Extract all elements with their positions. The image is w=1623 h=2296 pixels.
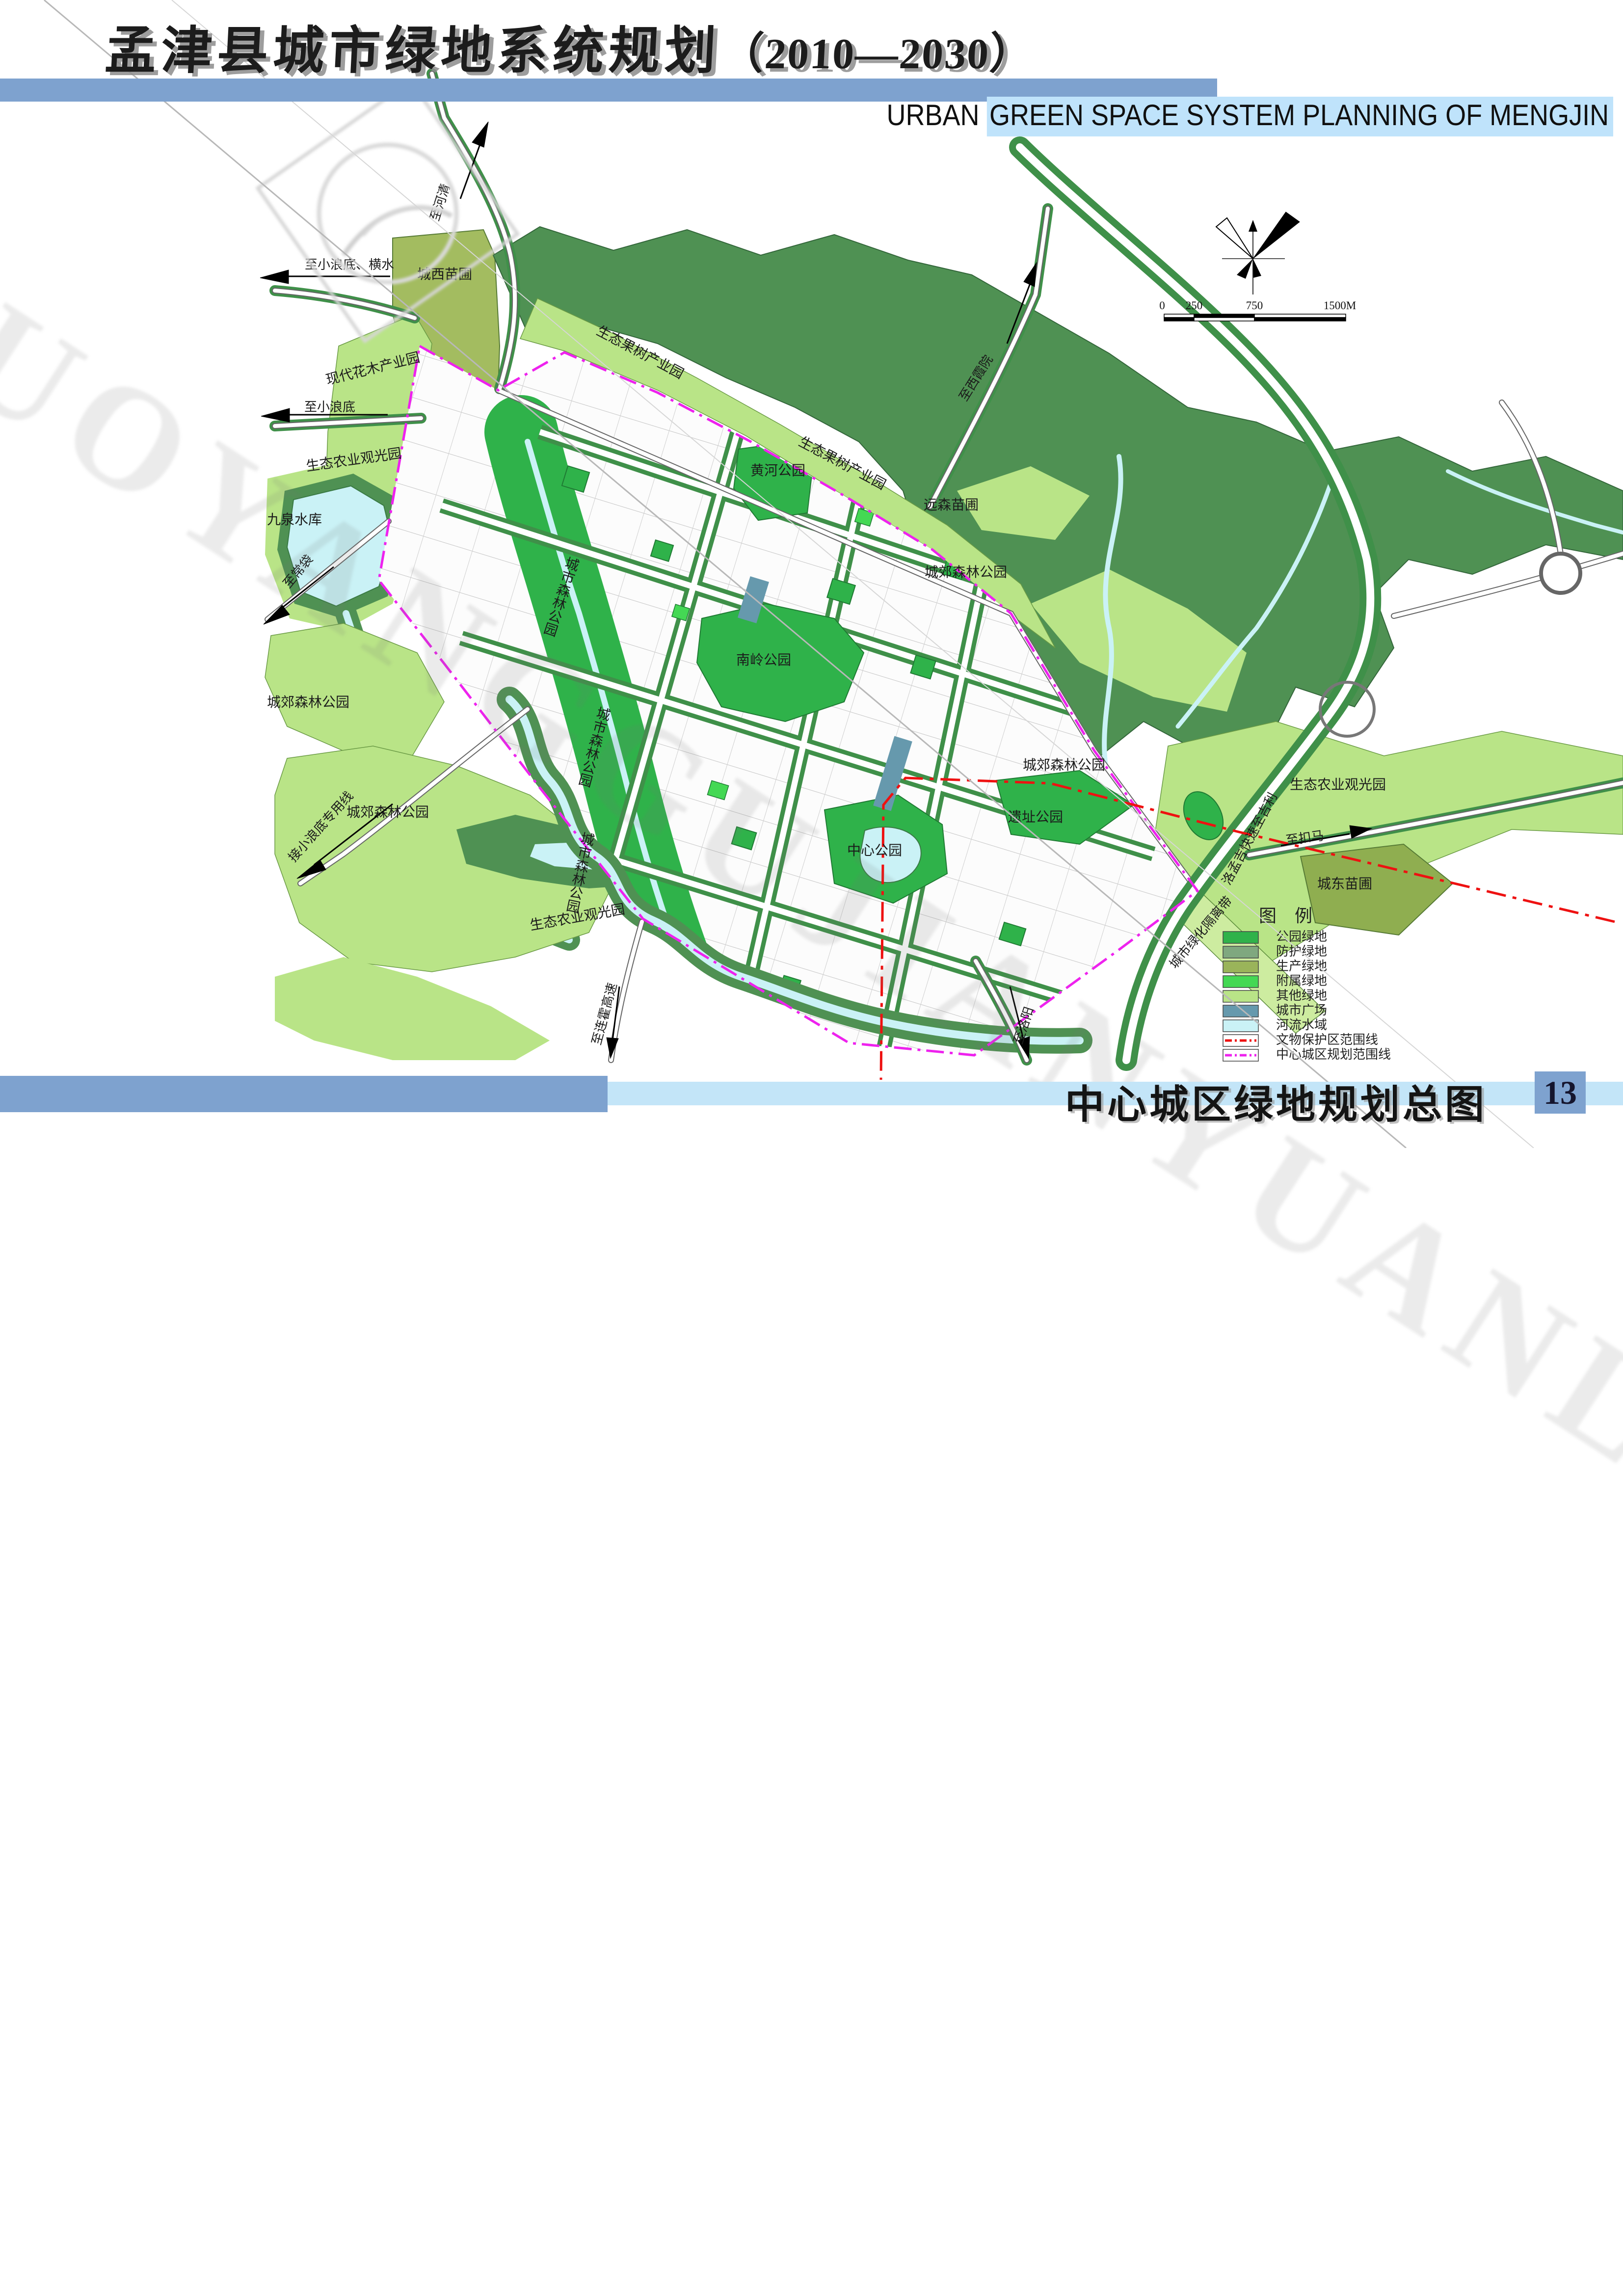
legend-label: 生产绿地 — [1276, 959, 1327, 973]
area-label: 远森苗圃 — [924, 497, 979, 513]
legend-swatch — [1223, 932, 1258, 943]
forestpark-sw1 — [265, 623, 444, 756]
area-label: 南岭公园 — [736, 652, 791, 668]
legend-label: 城市广场 — [1276, 1003, 1327, 1017]
legend-swatch — [1223, 946, 1258, 958]
roundabout — [1541, 554, 1580, 593]
agripark-sw — [275, 957, 550, 1060]
page-subtitle: URBAN GREEN SPACE SYSTEM PLANNING OF MEN… — [886, 98, 1613, 132]
legend-label: 防护绿地 — [1276, 944, 1327, 959]
road-label: 至小浪底 — [304, 400, 355, 414]
area-label: 城郊森林公园 — [267, 694, 349, 710]
area-label: 遗址公园 — [1008, 809, 1063, 825]
area-label: 城东苗圃 — [1317, 876, 1372, 892]
map-canvas: 现代花木产业园 城西苗圃 至小浪底、横水 至河清 至小浪底 生态农业观光园 九泉… — [0, 0, 1623, 1148]
map-caption: 中心城区绿地规划总图 — [1040, 1073, 1512, 1130]
legend-swatch — [1223, 990, 1258, 1002]
page: { "header": { "title_cn": "孟津县城市绿地系统规划",… — [0, 0, 1623, 1148]
area-label: 城郊森林公园 — [925, 564, 1007, 580]
legend-label: 文物保护区范围线 — [1276, 1033, 1378, 1047]
area-label: 九泉水库 — [267, 512, 322, 528]
subtitle-highlight: GREEN SPACE SYSTEM PLANNING OF MENGJIN — [986, 97, 1613, 136]
north-arrow — [1216, 212, 1300, 294]
scale-tick: 1500M — [1324, 299, 1356, 312]
scale-tick: 250 — [1186, 299, 1203, 312]
legend-swatch — [1223, 976, 1258, 988]
page-number: 13 — [1543, 1073, 1577, 1112]
area-label: 中心公园 — [847, 843, 902, 858]
area-label: 城郊森林公园 — [1023, 757, 1105, 773]
page-title: 孟津县城市绿地系统规划（2010—2030） — [104, 9, 1036, 83]
scale-bar: 0 250 750 1500M — [1159, 299, 1356, 321]
area-label: 城郊森林公园 — [346, 804, 429, 820]
legend-label: 河流水域 — [1276, 1018, 1327, 1032]
legend-swatch — [1223, 961, 1258, 973]
subtitle-prefix: URBAN — [886, 99, 986, 132]
title-years: （2010—2030） — [719, 30, 1035, 78]
title-cn-text: 孟津县城市绿地系统规划 — [104, 23, 722, 80]
scale-tick: 0 — [1159, 299, 1165, 312]
area-label: 黄河公园 — [750, 463, 805, 479]
legend-title: 图 例 — [1259, 906, 1319, 926]
page-number-box: 13 — [1535, 1071, 1586, 1114]
legend-label: 附属绿地 — [1276, 974, 1327, 988]
legend-label: 其他绿地 — [1276, 988, 1327, 1003]
footer-steel-bar — [0, 1076, 608, 1112]
area-label: 生态农业观光园 — [1290, 777, 1386, 793]
legend-label: 中心城区规划范围线 — [1276, 1047, 1391, 1062]
scale-tick: 750 — [1246, 299, 1263, 312]
legend-swatch — [1223, 1005, 1258, 1017]
legend-swatch — [1223, 1020, 1258, 1032]
